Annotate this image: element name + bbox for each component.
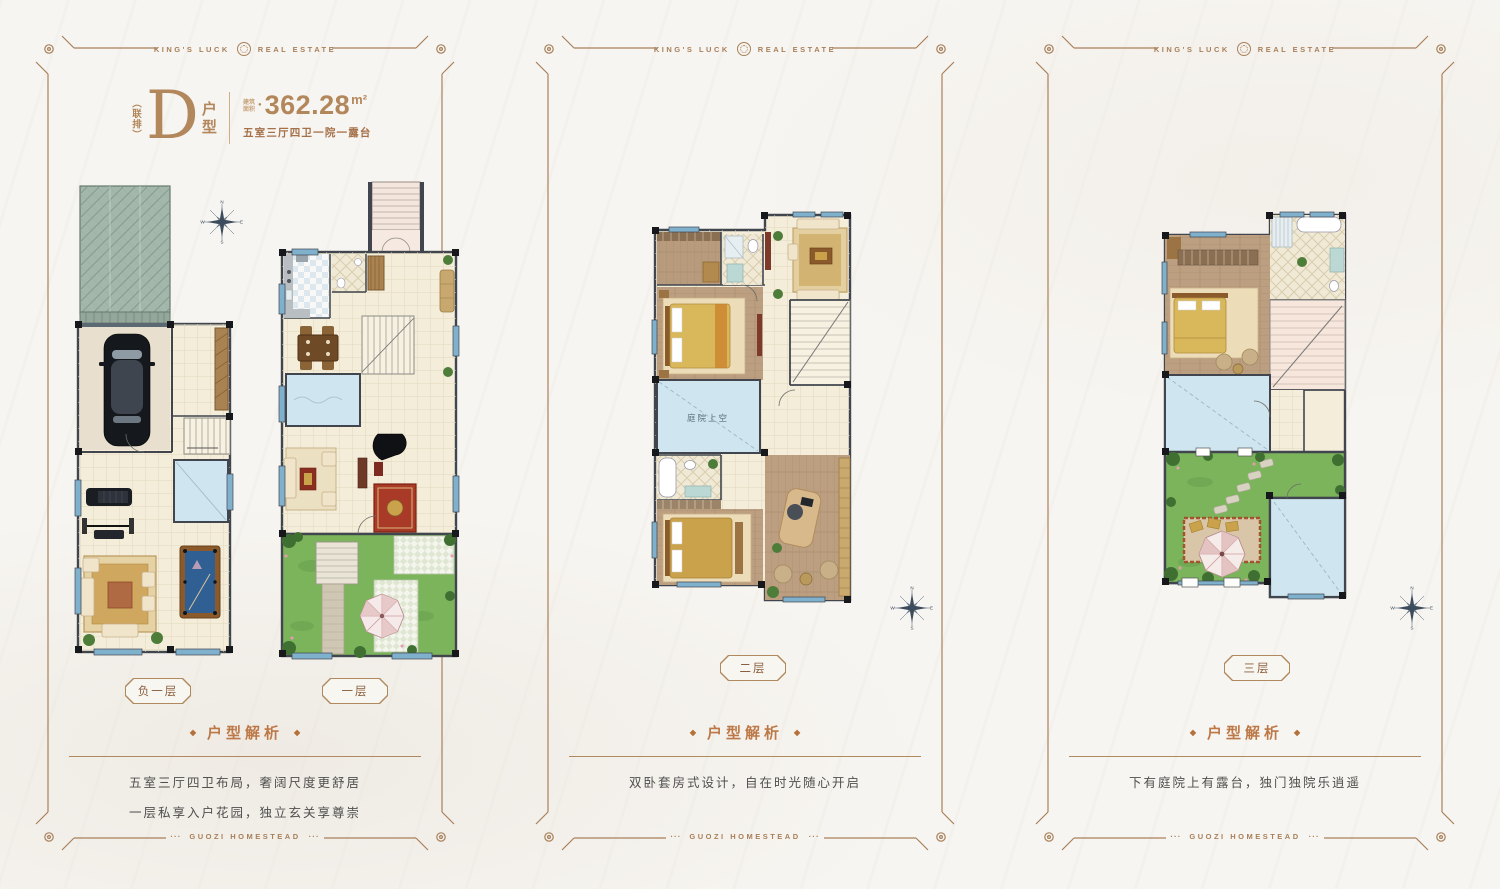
diamond-icon: ◆ xyxy=(1190,728,1196,737)
diamond-icon: ◆ xyxy=(794,728,800,737)
driveway-ramp xyxy=(80,186,170,324)
master-bedroom xyxy=(1165,235,1270,375)
coffee-table xyxy=(108,582,132,608)
pool-table xyxy=(180,546,220,618)
brand-footer: ··· GUOZI HOMESTEAD ··· xyxy=(28,832,462,841)
lounge-area xyxy=(81,556,163,646)
study xyxy=(765,455,850,600)
brand-medallion-icon xyxy=(1237,42,1251,56)
analysis-section: ◆ 户型解析 ◆ 五室三厅四卫布局，奢阔尺度更舒居 一层私享入户花园，独立玄关享… xyxy=(28,722,462,832)
tv-cabinet xyxy=(765,232,771,270)
divider-rule xyxy=(569,756,921,757)
plant-icon xyxy=(83,634,95,646)
sink xyxy=(355,259,362,266)
bathtub xyxy=(1297,217,1341,232)
stairs xyxy=(1270,300,1345,390)
bathroom-2 xyxy=(657,455,721,500)
sofa xyxy=(797,219,839,229)
kitchen xyxy=(284,254,330,318)
plant-icon xyxy=(443,367,453,377)
rattan-chair xyxy=(820,561,838,579)
divider-rule xyxy=(69,756,421,757)
courtyard-void xyxy=(1165,375,1270,452)
sofa xyxy=(797,290,839,300)
floor-badge-basement: 负一层 xyxy=(125,678,191,704)
floorplan-first-floor xyxy=(262,176,462,668)
rattan-chair xyxy=(1242,349,1258,365)
plant-icon xyxy=(772,543,782,553)
diamond-icon: ◆ xyxy=(690,728,696,737)
bed xyxy=(665,304,730,368)
nightstand xyxy=(659,370,669,378)
analysis-section: ◆ 户型解析 ◆ 双卧套房式设计，自在时光随心开启 xyxy=(528,722,962,802)
brand-name-right: REAL ESTATE xyxy=(258,45,336,54)
diamond-icon: ◆ xyxy=(190,728,196,737)
bedroom-2 xyxy=(657,509,763,585)
shower xyxy=(1272,217,1292,247)
garage xyxy=(78,323,172,452)
brand-medallion-icon xyxy=(737,42,751,56)
sofa xyxy=(81,578,94,616)
panel-third-floor: KING'S LUCK REAL ESTATE xyxy=(1028,28,1462,858)
unit-spec: 五室三厅四卫一院一露台 xyxy=(243,125,372,140)
area-label: 建筑 面积 xyxy=(243,100,255,114)
vanity xyxy=(1330,248,1344,272)
bathroom xyxy=(1270,215,1345,300)
nightstand xyxy=(659,290,669,298)
bathroom xyxy=(332,254,366,292)
analysis-title: ◆ 户型解析 ◆ xyxy=(28,722,462,743)
lightwell xyxy=(174,460,228,522)
plant-icon xyxy=(767,586,779,598)
diamond-icon: ◆ xyxy=(294,728,300,737)
svg-text:E: E xyxy=(930,606,933,611)
bed-bench xyxy=(735,522,743,574)
garden-path xyxy=(322,584,344,654)
stairs xyxy=(790,300,850,385)
bathroom xyxy=(723,234,763,285)
armchair xyxy=(142,572,155,587)
bathtub xyxy=(659,458,676,497)
floorplan-third-floor xyxy=(1150,202,1360,652)
poster-page: KING'S LUCK REAL ESTATE （联排） D 户 型 建筑 面积… xyxy=(0,0,1500,889)
rattan-chair xyxy=(774,565,792,583)
floor-badge-second-floor: 二层 xyxy=(720,655,786,681)
brand-header: KING'S LUCK REAL ESTATE xyxy=(1028,42,1462,56)
compass-icon: N E S W xyxy=(890,586,934,630)
armchair xyxy=(788,244,798,260)
compass-icon: N E S W xyxy=(1390,586,1434,630)
bed xyxy=(1172,293,1228,353)
vanity xyxy=(685,486,711,497)
floor-badge-first-floor: 一层 xyxy=(322,678,388,704)
plant-icon xyxy=(1297,257,1307,267)
terrace-parasol xyxy=(1199,531,1245,577)
courtyard-void: 庭院上空 xyxy=(657,380,760,453)
rattan-chair xyxy=(1216,354,1232,370)
terrace-skylight xyxy=(1270,498,1345,597)
closet-rail xyxy=(657,500,721,509)
area-unit: m² xyxy=(351,92,367,107)
brand-footer: ··· GUOZI HOMESTEAD ··· xyxy=(528,832,962,841)
analysis-section: ◆ 户型解析 ◆ 下有庭院上有露台，独门独院乐逍遥 xyxy=(1028,722,1462,802)
bedroom-1 xyxy=(657,287,763,380)
tick-ornament: ··· xyxy=(670,832,681,841)
side-table xyxy=(1233,364,1243,374)
console-table xyxy=(358,458,367,488)
garden-parasol xyxy=(360,594,404,638)
tick-ornament: ··· xyxy=(309,832,320,841)
title-divider xyxy=(229,92,230,144)
toilet-icon xyxy=(685,461,696,470)
svg-text:S: S xyxy=(910,626,913,631)
piano-bench xyxy=(374,462,383,476)
brand-footer: ··· GUOZI HOMESTEAD ··· xyxy=(1028,832,1462,841)
plant-icon xyxy=(773,231,783,241)
analysis-line: 一层私享入户花园，独立玄关享尊崇 xyxy=(28,802,462,821)
svg-text:N: N xyxy=(910,586,913,591)
analysis-line: 双卧套房式设计，自在时光随心开启 xyxy=(528,772,962,791)
brand-header: KING'S LUCK REAL ESTATE xyxy=(28,42,462,56)
toilet-icon xyxy=(337,278,345,288)
void-label: 庭院上空 xyxy=(687,413,729,423)
armchair xyxy=(142,596,155,611)
diamond-icon: ◆ xyxy=(1294,728,1300,737)
entry-porch xyxy=(372,230,420,252)
floor-badge-third-floor: 三层 xyxy=(1224,655,1290,681)
plant-icon xyxy=(773,289,783,299)
analysis-title: ◆ 户型解析 ◆ xyxy=(1028,722,1462,743)
water-feature xyxy=(286,374,360,426)
divider-rule xyxy=(1069,756,1421,757)
brand-medallion-icon xyxy=(237,42,251,56)
wardrobe xyxy=(657,232,721,241)
entry-stairs xyxy=(368,182,424,252)
brand-name-left: KING'S LUCK xyxy=(154,45,230,54)
living-room-sofa xyxy=(284,448,336,510)
svg-text:E: E xyxy=(1430,606,1433,611)
analysis-line: 五室三厅四卫布局，奢阔尺度更舒居 xyxy=(28,772,462,791)
red-rug xyxy=(374,484,416,532)
armchair xyxy=(83,558,99,572)
toilet-icon xyxy=(1330,281,1339,292)
tick-ornament: ··· xyxy=(1170,832,1181,841)
panel-second-floor: KING'S LUCK REAL ESTATE xyxy=(528,28,962,858)
desk-chair xyxy=(787,504,803,520)
dresser xyxy=(703,262,719,282)
stairs xyxy=(362,316,414,374)
svg-text:S: S xyxy=(1410,626,1413,631)
tick-ornament: ··· xyxy=(809,832,820,841)
analysis-title: ◆ 户型解析 ◆ xyxy=(528,722,962,743)
hall-closet xyxy=(368,256,384,290)
plant-icon xyxy=(708,459,718,469)
brand-header: KING'S LUCK REAL ESTATE xyxy=(528,42,962,56)
footer-brand: GUOZI HOMESTEAD xyxy=(1189,832,1300,841)
bed xyxy=(665,518,743,578)
plant-icon xyxy=(151,632,163,644)
dot-icon: ● xyxy=(258,102,262,108)
side-table xyxy=(800,573,812,585)
wardrobe xyxy=(1178,250,1258,265)
garden-stairs xyxy=(316,542,358,584)
unit-area-block: 建筑 面积 ● 362.28 m² 五室三厅四卫一院一露台 xyxy=(243,90,372,140)
unit-tag: （联排） xyxy=(128,98,142,140)
area-value: 362.28 xyxy=(265,90,351,120)
unit-suffix: 户 型 xyxy=(202,102,217,135)
car xyxy=(99,334,155,446)
tv-cabinet xyxy=(757,314,762,356)
footer-brand: GUOZI HOMESTEAD xyxy=(189,832,300,841)
vanity xyxy=(727,264,743,282)
dining-table xyxy=(298,335,338,361)
plant-icon xyxy=(443,255,453,265)
hall-bench xyxy=(440,270,454,312)
tick-ornament: ··· xyxy=(1309,832,1320,841)
analysis-line: 下有庭院上有露台，独门独院乐逍遥 xyxy=(1028,772,1462,791)
floorplan-basement xyxy=(68,182,268,662)
unit-title-block: （联排） D 户 型 建筑 面积 ● 362.28 m² 五室三厅四卫一院一露台 xyxy=(128,86,372,146)
sofa xyxy=(102,624,138,637)
tick-ornament: ··· xyxy=(170,832,181,841)
bookshelf xyxy=(839,458,850,596)
stairs xyxy=(184,418,230,454)
toilet-icon xyxy=(748,240,758,253)
sink xyxy=(286,290,292,300)
garden xyxy=(282,532,456,658)
unit-letter: D xyxy=(146,86,199,146)
footer-brand: GUOZI HOMESTEAD xyxy=(689,832,800,841)
floorplan-second-floor: 庭院上空 xyxy=(645,202,855,652)
panel-unit-d: KING'S LUCK REAL ESTATE （联排） D 户 型 建筑 面积… xyxy=(28,28,462,858)
svg-text:N: N xyxy=(1410,586,1413,591)
